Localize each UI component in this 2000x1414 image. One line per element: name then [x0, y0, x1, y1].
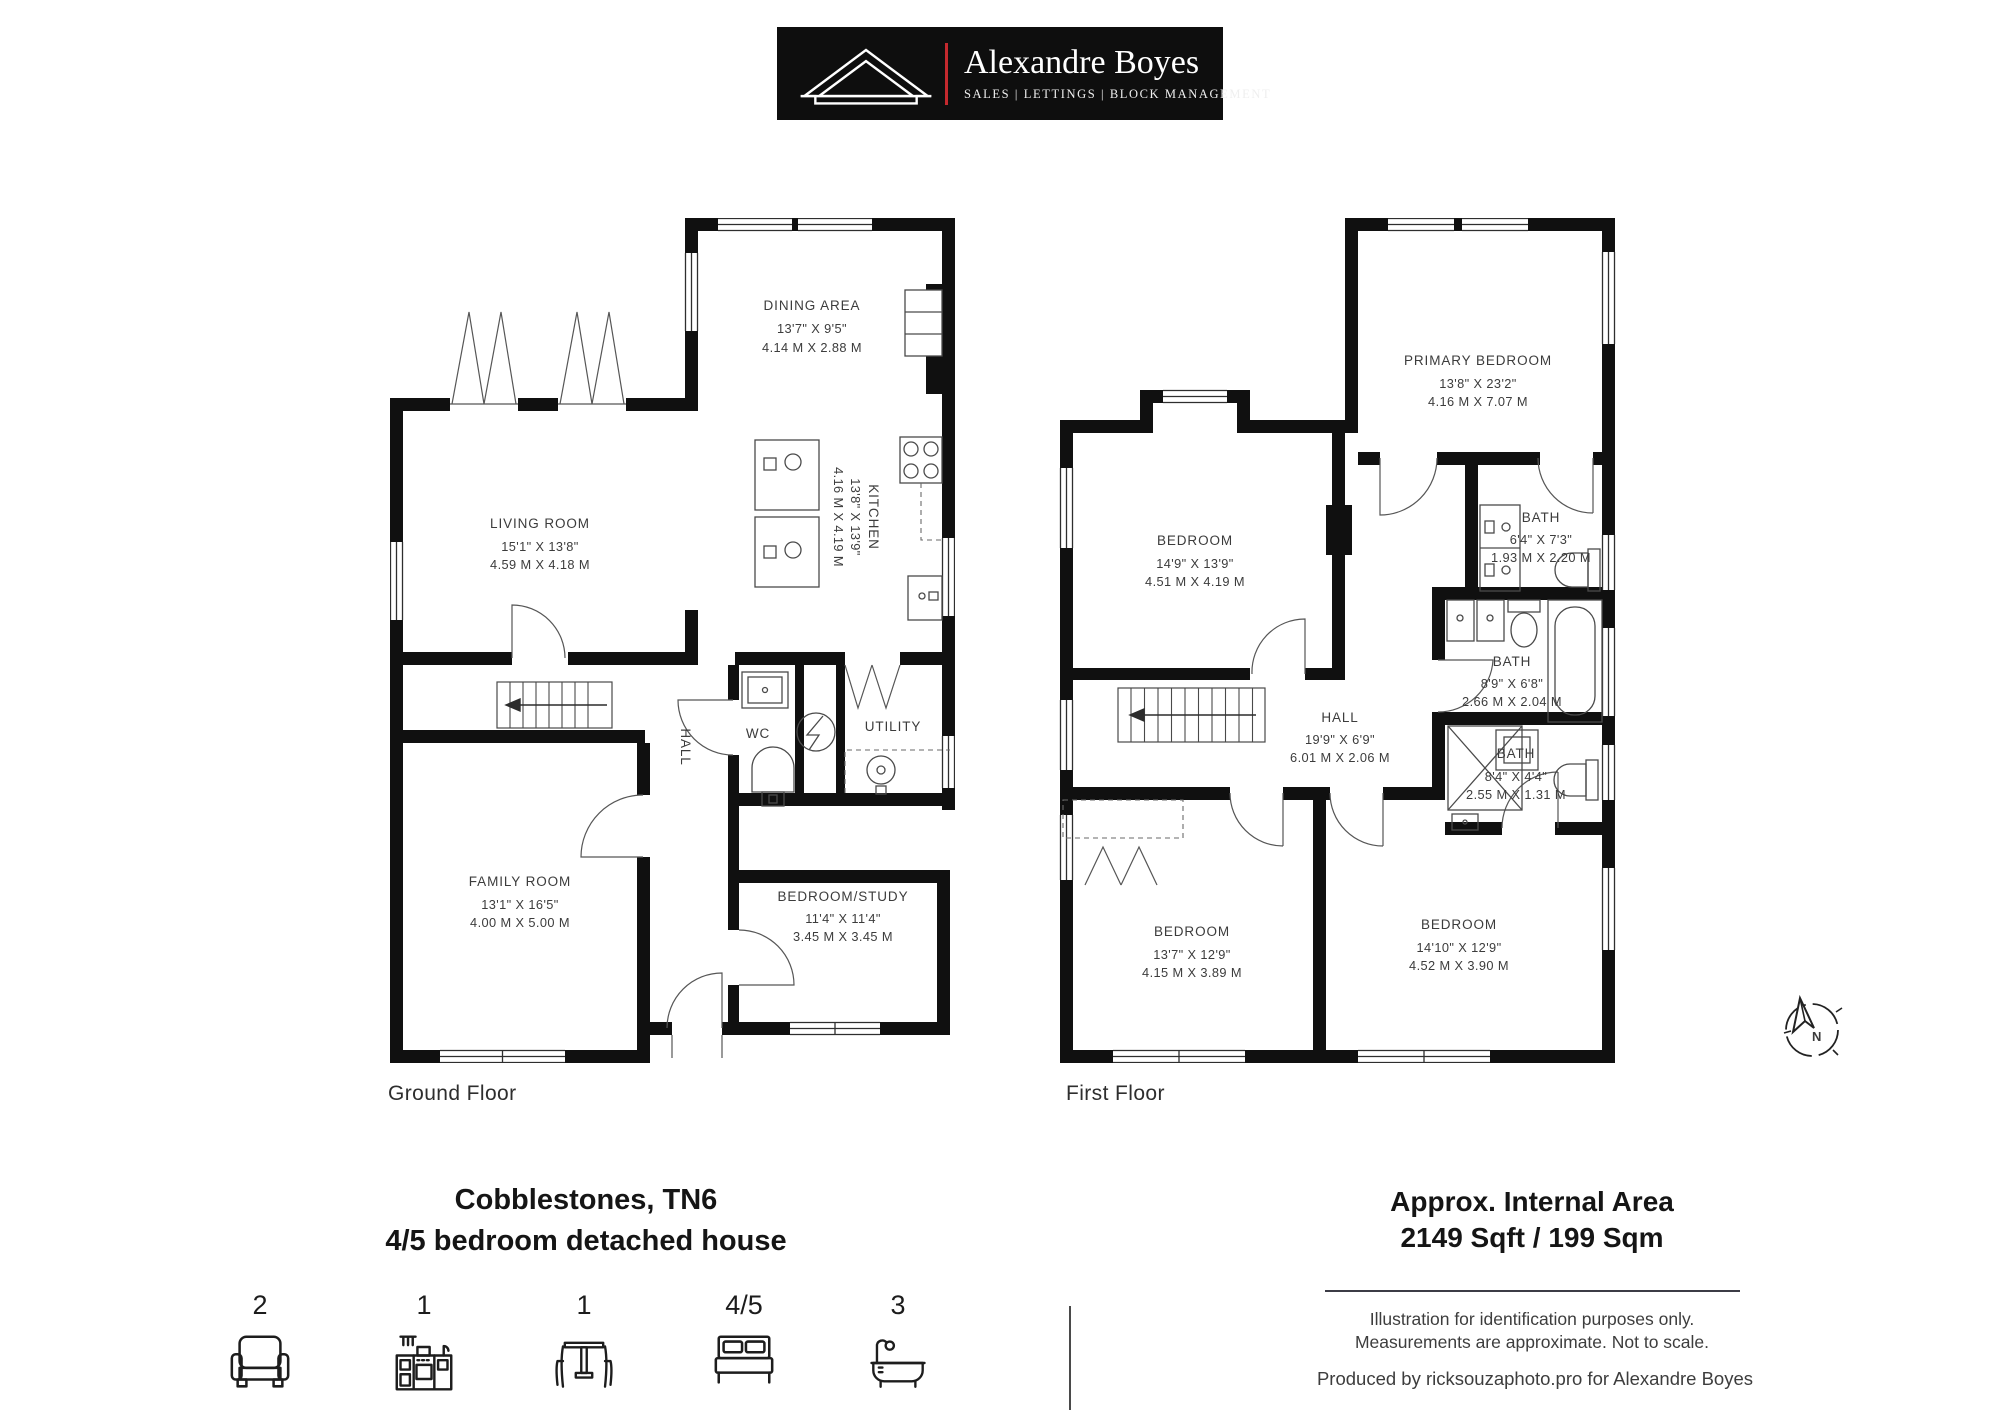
vertical-divider [1069, 1306, 1071, 1410]
kitchen-island [755, 440, 819, 587]
ground-door-arcs [512, 605, 794, 1058]
room-dims: 13'7" X 9'5" [777, 321, 847, 336]
room-dims: 6'4" X 7'3" [1510, 532, 1573, 547]
compass-icon: N [1778, 992, 1850, 1066]
count-receptions: 2 [200, 1290, 320, 1399]
room-dims: 2.55 M X 1.31 M [1466, 787, 1566, 802]
room-dims: 11'4" X 11'4" [805, 911, 881, 926]
room-dims: 19'9" X 6'9" [1305, 732, 1375, 747]
brand-name: Alexandre Boyes [964, 45, 1271, 81]
washing-machine-icon [845, 750, 950, 794]
count-value: 1 [364, 1290, 484, 1320]
ground-floor-caption: Ground Floor [388, 1082, 517, 1106]
room-label-bedroom-study: BEDROOM/STUDY [778, 889, 909, 904]
stove-icon [900, 437, 942, 483]
room-label-dining: DINING AREA [764, 298, 861, 313]
count-value: 4/5 [684, 1290, 804, 1320]
room-dims: 13'1" X 16'5" [481, 897, 559, 912]
room-dims: 14'9" X 13'9" [1156, 556, 1234, 571]
disclaimer-line1: Illustration for identification purposes… [1282, 1308, 1782, 1331]
internal-area: Approx. Internal Area 2149 Sqft / 199 Sq… [1282, 1184, 1782, 1256]
property-title-line1: Cobblestones, TN6 [286, 1180, 886, 1221]
room-label-utility: UTILITY [865, 719, 922, 734]
bed-icon [710, 1332, 778, 1390]
room-label-hall-ff: HALL [1321, 710, 1358, 725]
property-title: Cobblestones, TN6 4/5 bedroom detached h… [286, 1180, 886, 1262]
dining-icon [552, 1332, 616, 1392]
ground-stairs [497, 682, 612, 728]
room-label-bath2: BATH [1493, 654, 1532, 669]
count-kitchens: 1 [364, 1290, 484, 1399]
compass-north-label: N [1812, 1029, 1821, 1044]
room-label-living: LIVING ROOM [490, 516, 590, 531]
room-label-bedroom-br: BEDROOM [1421, 917, 1497, 932]
first-floor-plan: PRIMARY BEDROOM 13'8" X 23'2" 4.16 M X 7… [1055, 218, 1625, 1063]
first-floor-caption: First Floor [1066, 1082, 1165, 1106]
room-dims: 4.52 M X 3.90 M [1409, 958, 1509, 973]
room-dims: 14'10" X 12'9" [1416, 940, 1501, 955]
ground-floor-plan: DINING AREA 13'7" X 9'5" 4.14 M X 2.88 M… [390, 218, 955, 1063]
room-dims: 6.01 M X 2.06 M [1290, 750, 1390, 765]
room-label-bath3: BATH [1497, 746, 1536, 761]
sofa-icon [226, 1332, 294, 1394]
room-label-bedroom-bl: BEDROOM [1154, 924, 1230, 939]
room-label-hall: HALL [678, 728, 693, 765]
count-dining: 1 [524, 1290, 644, 1397]
wardrobe [1063, 800, 1183, 885]
room-dims: 3.45 M X 3.45 M [793, 929, 893, 944]
kitchen-icon [391, 1332, 457, 1394]
internal-area-line2: 2149 Sqft / 199 Sqm [1282, 1220, 1782, 1256]
room-dims: 4.16 M X 4.19 M [831, 467, 846, 567]
internal-area-line1: Approx. Internal Area [1282, 1184, 1782, 1220]
disclaimer: Illustration for identification purposes… [1282, 1308, 1782, 1354]
credit-line: Produced by ricksouzaphoto.pro for Alexa… [1255, 1368, 1815, 1390]
disclaimer-line2: Measurements are approximate. Not to sca… [1282, 1331, 1782, 1354]
room-dims: 13'8" X 13'9" [848, 478, 863, 556]
room-dims: 1.93 M X 2.20 M [1491, 550, 1591, 565]
room-dims: 4.51 M X 4.19 M [1145, 574, 1245, 589]
count-value: 2 [200, 1290, 320, 1320]
count-baths: 3 [838, 1290, 958, 1399]
brand-tagline: SALES | LETTINGS | BLOCK MANAGEMENT [964, 87, 1271, 102]
room-dims: 4.00 M X 5.00 M [470, 915, 570, 930]
room-label-bath1: BATH [1522, 510, 1561, 525]
count-bedrooms: 4/5 [684, 1290, 804, 1395]
count-value: 1 [524, 1290, 644, 1320]
bath-icon [866, 1332, 930, 1394]
first-walls [1060, 218, 1615, 1063]
room-dims: 4.59 M X 4.18 M [490, 557, 590, 572]
room-dims: 2.66 M X 2.04 M [1462, 694, 1562, 709]
roof-icon [791, 39, 941, 109]
logo-divider [945, 43, 948, 105]
room-label-primary: PRIMARY BEDROOM [1404, 353, 1552, 368]
agency-logo: Alexandre Boyes SALES | LETTINGS | BLOCK… [777, 27, 1223, 120]
property-title-line2: 4/5 bedroom detached house [286, 1221, 886, 1262]
room-dims: 13'7" X 12'9" [1153, 947, 1231, 962]
room-dims: 4.14 M X 2.88 M [762, 340, 862, 355]
room-dims: 8'4" X 4'4" [1485, 769, 1548, 784]
room-label-kitchen: KITCHEN [866, 484, 881, 550]
room-dims: 15'1" X 13'8" [501, 539, 579, 554]
room-dims: 13'8" X 23'2" [1439, 376, 1517, 391]
first-stairs [1118, 688, 1265, 742]
room-dims: 4.16 M X 7.07 M [1428, 394, 1528, 409]
room-dims: 4.15 M X 3.89 M [1142, 965, 1242, 980]
room-dims: 8'9" X 6'8" [1481, 676, 1544, 691]
count-value: 3 [838, 1290, 958, 1320]
divider-line [1325, 1290, 1740, 1292]
room-label-wc: WC [746, 726, 770, 741]
room-label-family: FAMILY ROOM [469, 874, 571, 889]
room-label-bedroom-tl: BEDROOM [1157, 533, 1233, 548]
